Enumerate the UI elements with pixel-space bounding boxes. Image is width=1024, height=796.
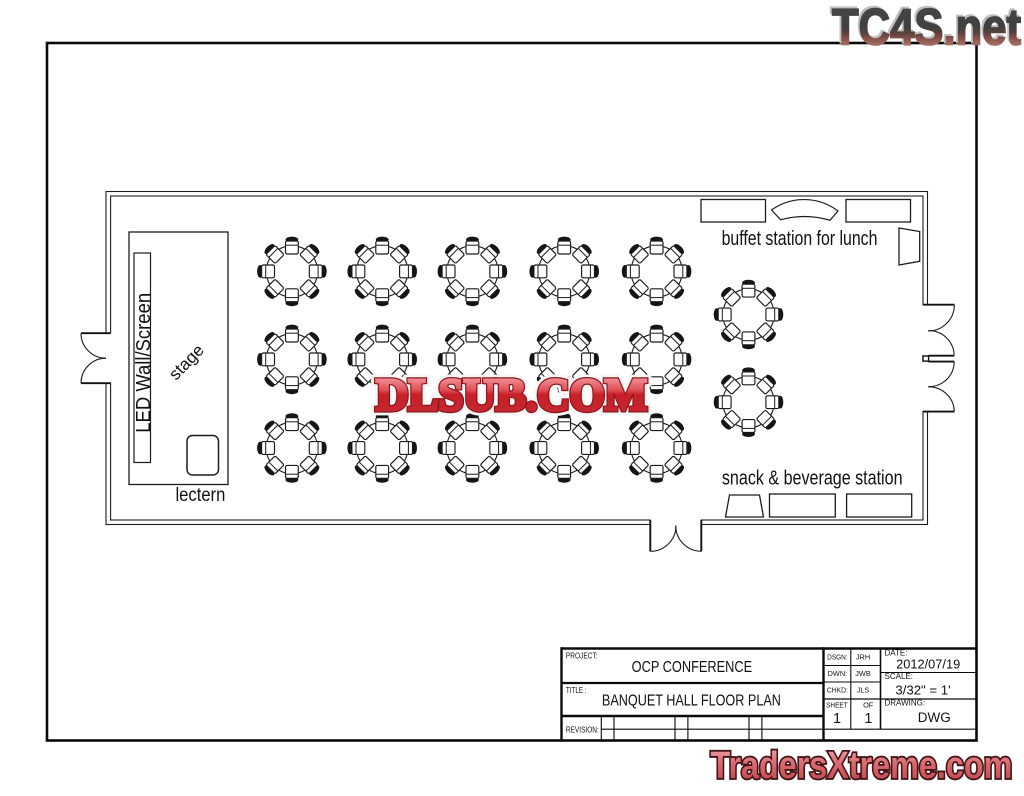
svg-text:TITLE :: TITLE : bbox=[566, 686, 587, 695]
svg-text:DLSUB.COM: DLSUB.COM bbox=[376, 370, 647, 420]
svg-text:OF: OF bbox=[863, 701, 874, 710]
svg-text:3/32" = 1': 3/32" = 1' bbox=[895, 682, 950, 697]
svg-text:lectern: lectern bbox=[175, 484, 225, 505]
svg-text:TC4S.net: TC4S.net bbox=[832, 0, 1021, 56]
svg-text:JLS: JLS bbox=[857, 685, 870, 694]
svg-text:DRAWING:: DRAWING: bbox=[885, 699, 926, 708]
svg-text:DWN:: DWN: bbox=[828, 669, 848, 678]
svg-text:OCP CONFERENCE: OCP CONFERENCE bbox=[632, 659, 753, 677]
svg-text:JRH: JRH bbox=[856, 653, 870, 662]
svg-text:BANQUET HALL FLOOR PLAN: BANQUET HALL FLOOR PLAN bbox=[602, 692, 781, 710]
svg-text:CHKD:: CHKD: bbox=[827, 685, 848, 694]
svg-text:SCALE:: SCALE: bbox=[885, 672, 913, 681]
svg-text:buffet station for lunch: buffet station for lunch bbox=[722, 227, 878, 249]
svg-text:SHEET: SHEET bbox=[826, 701, 848, 710]
svg-text:REVISION:: REVISION: bbox=[566, 725, 599, 734]
svg-text:TradersXtreme.com: TradersXtreme.com bbox=[710, 745, 1012, 787]
svg-text:snack & beverage station: snack & beverage station bbox=[722, 467, 903, 489]
svg-text:PROJECT:: PROJECT: bbox=[566, 651, 598, 660]
svg-text:2012/07/19: 2012/07/19 bbox=[896, 657, 960, 672]
svg-text:LED Wall/Screen: LED Wall/Screen bbox=[133, 293, 155, 433]
svg-text:DWG: DWG bbox=[918, 710, 951, 725]
svg-text:1: 1 bbox=[864, 711, 872, 727]
svg-text:stage: stage bbox=[165, 341, 208, 384]
svg-text:JWB: JWB bbox=[855, 669, 871, 678]
svg-text:DSGN:: DSGN: bbox=[827, 653, 848, 662]
svg-text:1: 1 bbox=[833, 711, 841, 727]
